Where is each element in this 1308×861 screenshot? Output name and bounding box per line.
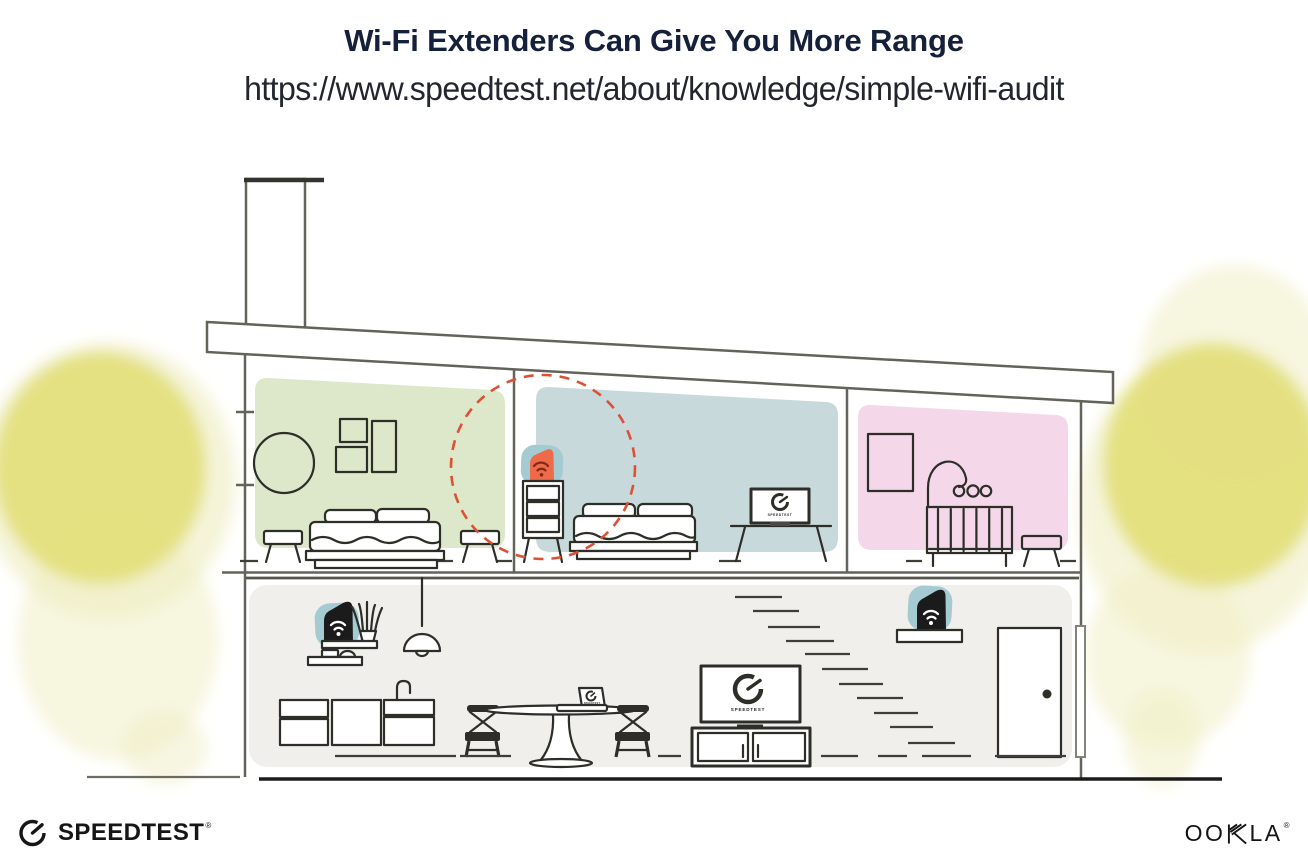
ookla-k-glyph [1227,823,1248,845]
hallway-shelf [897,630,962,642]
bed [306,509,444,568]
foliage-right [1077,265,1308,786]
speedtest-gauge-icon [18,817,50,849]
tv-bedroom: SPEEDTEST [751,489,809,526]
front-door [998,628,1061,757]
speedtest-wordmark: SPEEDTEST [58,819,204,847]
living-room-tv-label: SPEEDTEST [731,707,766,712]
dresser [523,481,563,538]
tv-cabinet [692,728,810,766]
ookla-la: LA [1249,820,1282,847]
house-illustration: SPEEDTEST [0,0,1308,861]
registered-mark: ® [205,821,211,830]
living-room-tv: SPEEDTEST [692,666,810,766]
ookla-logo: OO LA ® [1185,820,1292,847]
sidelight-window [1076,626,1085,757]
foliage-left [0,342,236,784]
chimney [246,179,305,329]
bedroom-tv-label: SPEEDTEST [768,513,793,517]
shelf-upper [322,641,377,648]
registered-mark: ® [1284,821,1292,830]
bed [570,504,697,559]
ookla-oo: OO [1185,820,1226,847]
shelf-lower [308,657,362,665]
door-knob [1043,690,1052,699]
speedtest-logo: SPEEDTEST ® [18,817,211,849]
